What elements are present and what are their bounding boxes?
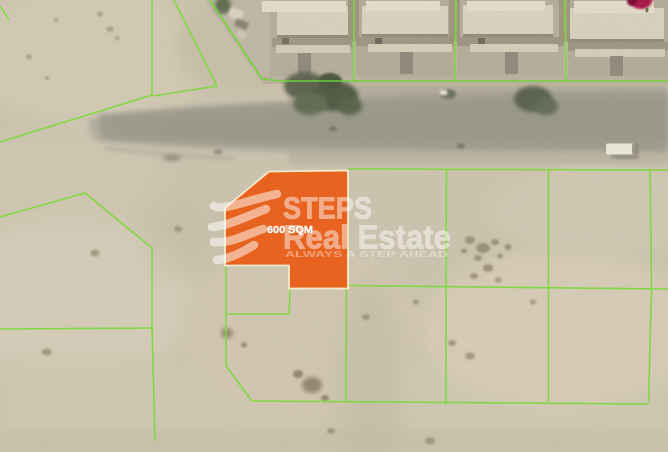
svg-text:ALWAYS A STEP AHEAD: ALWAYS A STEP AHEAD bbox=[285, 250, 448, 259]
svg-text:600 SQM: 600 SQM bbox=[267, 224, 313, 236]
